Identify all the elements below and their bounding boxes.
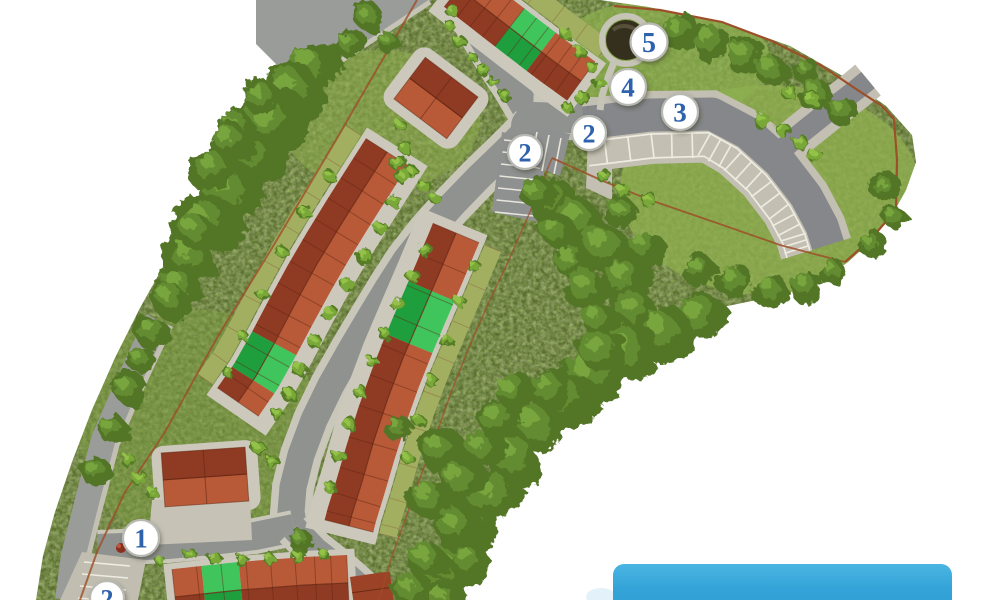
svg-text:2: 2 bbox=[519, 138, 532, 167]
svg-text:5: 5 bbox=[642, 28, 656, 59]
svg-text:4: 4 bbox=[621, 73, 635, 103]
svg-text:1: 1 bbox=[134, 524, 148, 554]
svg-text:3: 3 bbox=[673, 98, 687, 128]
svg-text:2: 2 bbox=[101, 584, 114, 600]
svg-text:2: 2 bbox=[583, 119, 596, 148]
